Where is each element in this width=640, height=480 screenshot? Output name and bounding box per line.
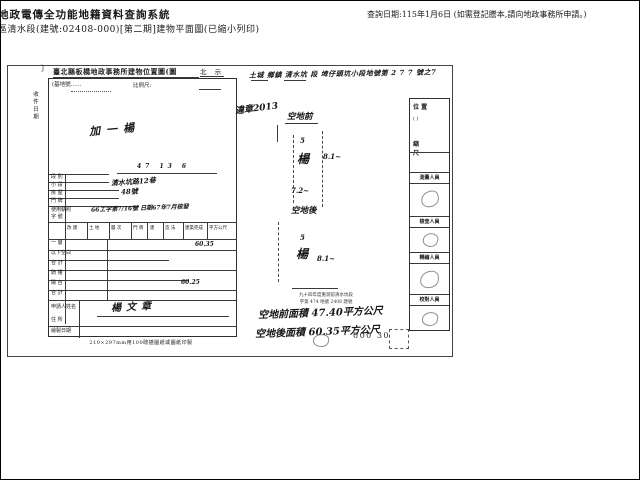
- building-owner-mark-1: 楊: [297, 150, 309, 167]
- open-land-back-label: 空地後: [291, 204, 317, 216]
- system-title: 地政電傳全功能地籍資料查詢系統: [0, 7, 171, 22]
- plan-dim-left-2: 5: [300, 233, 305, 242]
- handwritten-permit-number: 66工字第7/16號 日期67年7月核發: [91, 201, 189, 213]
- building-owner-mark-2: 楊: [296, 245, 308, 262]
- row-label-3: 門 牌: [51, 199, 63, 205]
- row-label-2: 房 屋: [51, 191, 63, 197]
- col-header-2: 層 次: [111, 226, 121, 231]
- col-header-6: 建築完成: [185, 226, 203, 231]
- row-label-4: 使用執照: [51, 208, 71, 214]
- position-box-paren: ( ): [413, 117, 419, 123]
- form-title: 臺北縣板橋地政事務所建物位置圖(圖: [53, 67, 177, 77]
- staff-stamp-scribble-0: [420, 189, 441, 208]
- query-system-page: 地政電傳全功能地籍資料查詢系統 區清水段(建號:02408-000)[第二期]建…: [0, 0, 640, 480]
- staff-stamp-scribble-2: [419, 270, 440, 289]
- handwritten-area-total-1: 60.35: [195, 241, 214, 248]
- address-label: 住 所: [51, 318, 63, 324]
- col-header-4: 建: [150, 226, 155, 231]
- form-paper-caption: 210×297mm用100磅描圖紙或圖紙印製: [56, 339, 226, 346]
- staff-box-label-0: 測量人員: [410, 174, 449, 181]
- document-subtitle: 區清水段(建號:02408-000)[第二期]建物平面圖(已縮小列印): [0, 22, 259, 35]
- north-indicator-label: 北 示: [200, 66, 224, 76]
- row-label-5: 字 號: [51, 215, 63, 221]
- col-header-0: 改 建: [67, 226, 77, 231]
- verification-strip: 位 置 ( ) 縮 尺 測量人員 檢查人員 轉繪人員 校對人員: [409, 98, 450, 331]
- plan-dim-bottom-1: 7.2~: [291, 186, 309, 195]
- sketch-dimension: 47 13 6: [137, 163, 190, 170]
- applicant-label: 申請人姓名: [51, 305, 76, 311]
- seal-placeholder-box: [389, 329, 409, 349]
- sketch-annotation: 加一楊: [88, 119, 140, 139]
- staff-stamp-scribble-1: [421, 231, 440, 249]
- row-label-0: 段 別: [51, 175, 63, 181]
- margin-vertical-label: 收件日期: [31, 91, 39, 121]
- page-number-stamp: 000 30: [353, 331, 390, 340]
- area-row-label-4: 陽 台: [51, 281, 63, 287]
- form-body: (基地號…… 比例尺: 加一楊 47 13 6 段 別 小 段 房 屋 門 牌 …: [48, 78, 237, 337]
- handwritten-signature: 楊文章: [111, 297, 157, 314]
- staff-box-label-2: 轉繪人員: [410, 254, 449, 261]
- plan-dim-right-2: 8.1~: [317, 254, 335, 263]
- col-header-7: 平方公尺: [209, 226, 227, 231]
- base-lot-label: (基地號……: [52, 82, 82, 88]
- query-date-note: 查詢日期:115年1月6日 (如需登記謄本,請向地政事務所申請。): [367, 9, 586, 20]
- plan-dim-right-1: 8.1~: [323, 152, 341, 161]
- open-land-front-label: 空地前: [287, 110, 313, 122]
- scale-box-title: 縮 尺: [413, 139, 446, 157]
- handwritten-address-line2: 48號: [121, 187, 138, 198]
- handwritten-area-total-2: 60.25: [181, 279, 200, 286]
- plan-dim-left-1: 5: [300, 136, 305, 145]
- margin-mark: 〕: [41, 63, 49, 74]
- draw-date-label: 繪製日期: [51, 329, 71, 335]
- staff-box-label-1: 檢查人員: [410, 218, 449, 225]
- area-row-label-1: 以下空白: [51, 251, 71, 257]
- area-row-label-2: 合 計: [51, 261, 63, 267]
- col-header-3: 門 牌: [133, 226, 143, 231]
- area-row-label-0: 一 層: [51, 241, 63, 247]
- position-box-title: 位 置: [413, 102, 446, 111]
- col-header-1: 土 地: [89, 226, 99, 231]
- area-row-label-3: 騎 樓: [51, 271, 63, 277]
- staff-stamp-scribble-3: [421, 311, 439, 327]
- col-header-5: 造 法: [165, 226, 175, 231]
- row-label-1: 小 段: [51, 183, 63, 189]
- resurvey-stamp-line1: 九十四年度重測前清水坑段: [267, 293, 385, 300]
- scale-label: 比例尺:: [133, 83, 151, 89]
- area-row-label-5: 合 計: [51, 291, 63, 297]
- staff-box-label-3: 校對人員: [410, 296, 449, 303]
